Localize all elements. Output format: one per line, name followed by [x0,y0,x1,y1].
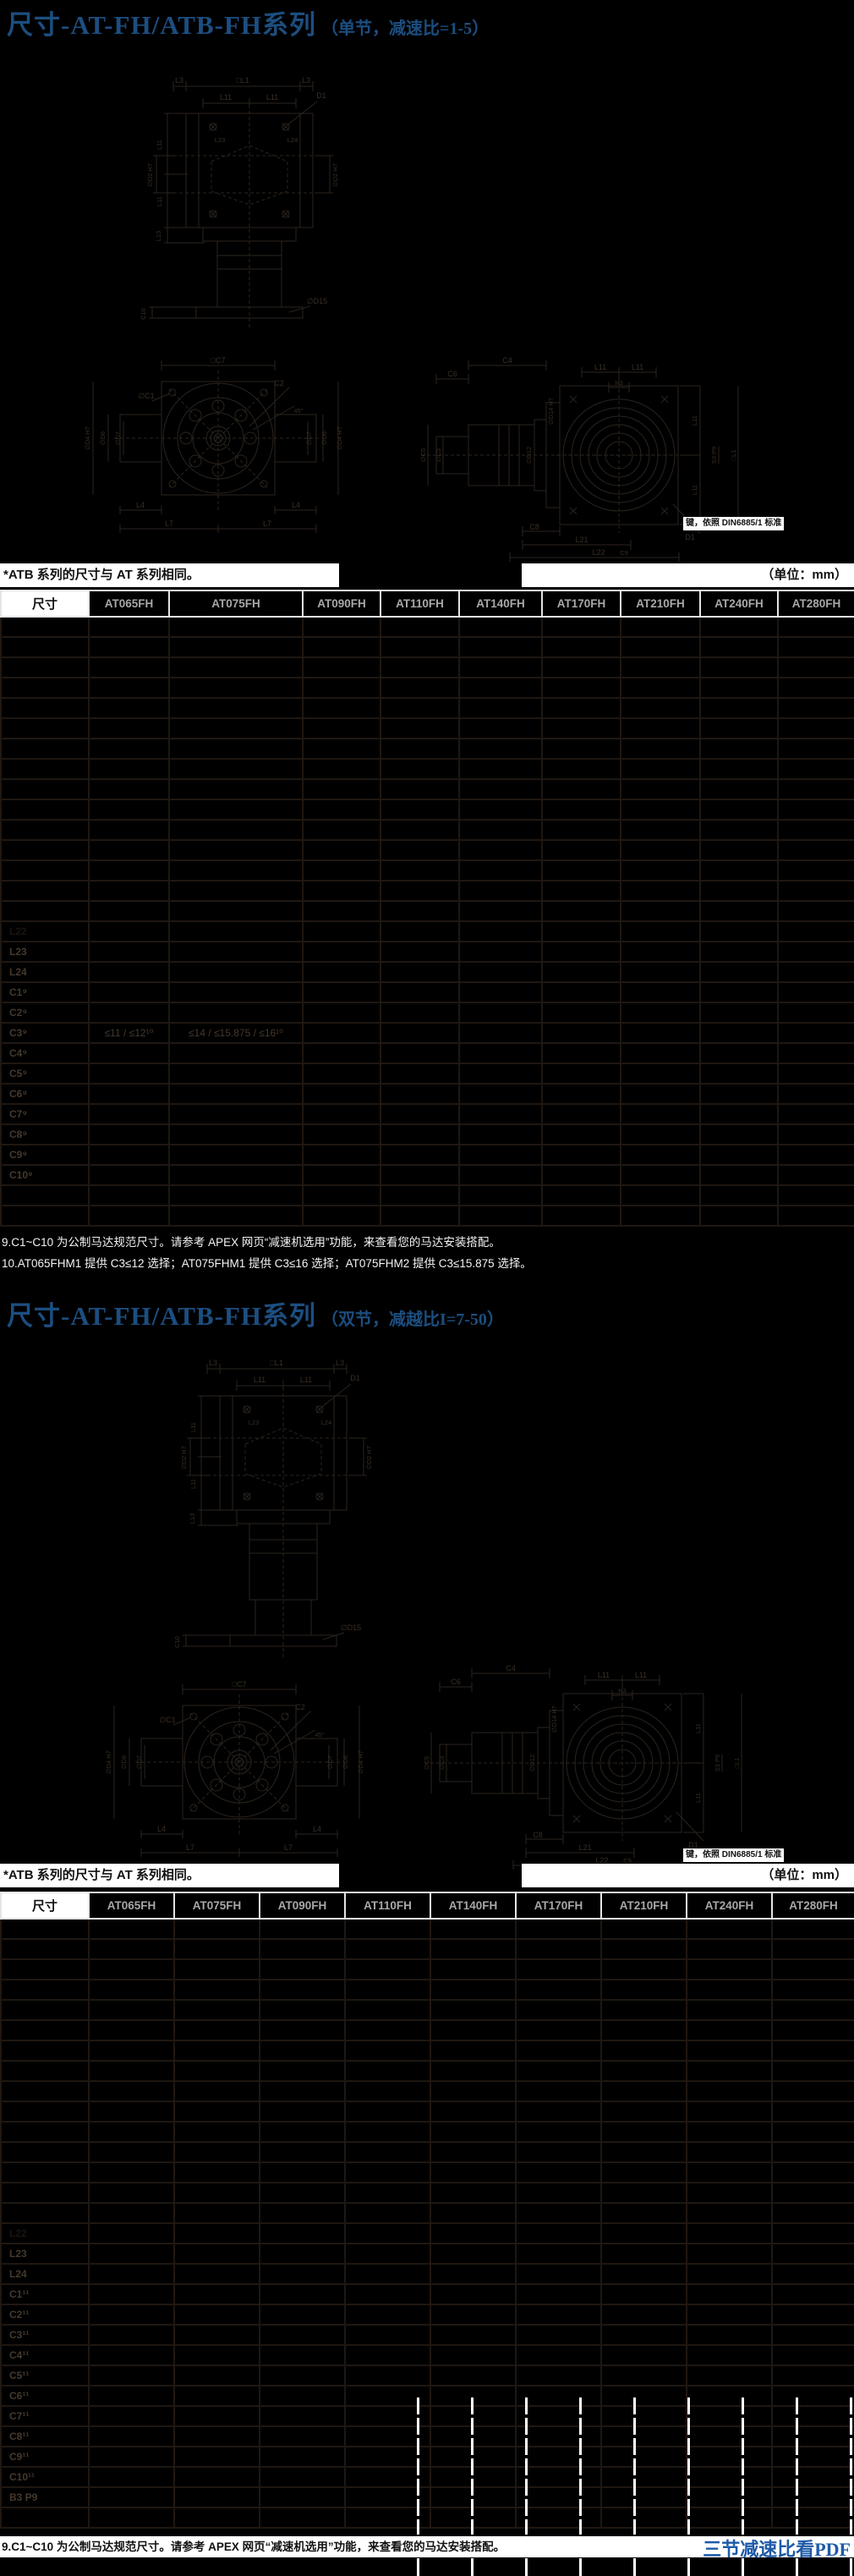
dimension-cell [89,1145,169,1165]
dimension-cell [778,779,854,799]
dimension-cell [621,820,700,840]
dimension-cell [542,637,621,657]
dimension-cell [459,1185,542,1206]
dimension-cell [778,1023,854,1043]
dimension-cell [542,1104,621,1124]
top-view-drawing-1: L3 □L1 L3 L11 L11 D1 L23 L24 ∅D2 H7 ∅D2 … [76,64,355,333]
row-label [1,2000,89,2020]
dimension-cell [687,2507,772,2528]
dimension-cell [687,2061,772,2081]
row-label [1,2040,89,2061]
row-label: C10¹¹ [1,2467,89,2487]
table-header-row: 尺寸 AT065FH AT075FH AT090FH AT110FH AT140… [1,1892,854,1919]
dimension-cell [169,657,303,678]
dim-label: C10 [140,308,147,320]
table-row: C9¹¹ [1,2447,854,2467]
dimension-cell [303,1023,380,1043]
dimension-cell [601,2386,687,2406]
dimension-cell [700,962,778,982]
dimension-cell [260,2507,345,2528]
dimension-cell [542,901,621,921]
dimension-cell [430,2284,516,2304]
dimension-cell [430,2020,516,2040]
dimension-cell [380,1145,459,1165]
dimension-cell [380,1206,459,1226]
dimension-cell [459,1043,542,1063]
dimension-cell [169,1104,303,1124]
dimension-cell [89,840,169,860]
dimension-cell [621,1043,700,1063]
dimension-cell: ≤14 / ≤15.875 / ≤16¹⁰ [169,1023,303,1043]
dimension-cell [174,2365,260,2386]
table-row [1,2203,854,2223]
dimension-cell [772,2507,854,2528]
dimension-cell [778,739,854,759]
table-row [1,2020,854,2040]
dimension-cell [380,921,459,942]
table-row [1,739,854,759]
dimension-cell [516,2040,601,2061]
dimension-cell [700,1002,778,1023]
dimension-cell [174,2345,260,2365]
dimension-cell [542,779,621,799]
dimension-cell [516,2345,601,2365]
dimension-cell [621,1104,700,1124]
dimension-cell [345,2183,430,2203]
table-row [1,1980,854,2000]
dimension-cell [687,2426,772,2447]
dimension-table-double-stage: 尺寸 AT065FH AT075FH AT090FH AT110FH AT140… [0,1892,854,2529]
dim-label: L24 [321,1419,332,1426]
dimension-cell [687,2304,772,2325]
dimension-cell [516,2426,601,2447]
row-label: B3 P9 [1,2487,89,2507]
dimension-cell [542,678,621,698]
dimension-cell [89,2122,174,2142]
dim-label: L4 [292,501,300,509]
dim-label: L11 [691,415,698,426]
dimension-cell [380,698,459,718]
column-header: AT170FH [516,1892,601,1919]
dimension-cell [89,1104,169,1124]
row-label [1,779,89,799]
dimension-cell [174,2507,260,2528]
dimension-cell [700,739,778,759]
table-row [1,698,854,718]
dimension-cell [89,2040,174,2061]
dim-label: L11 [156,196,163,206]
dim-label: L3 [209,1359,217,1367]
dimension-cell [542,840,621,860]
dimension-cell [542,1002,621,1023]
dimension-cell [260,2162,345,2183]
dimension-cell [303,1206,380,1226]
dimension-cell [601,2162,687,2183]
dimension-cell [380,1185,459,1206]
dimension-cell [772,1959,854,1980]
dimension-cell [459,942,542,962]
dim-label: L11 [189,1422,197,1432]
column-header: AT065FH [89,590,169,617]
dimension-cell [303,698,380,718]
dimension-cell [778,942,854,962]
dimension-cell [542,942,621,962]
dimension-cell [459,901,542,921]
dimension-cell [772,2426,854,2447]
dimension-cell [89,637,169,657]
column-header: AT090FH [303,590,380,617]
dimension-cell [542,860,621,881]
dimension-cell [621,759,700,779]
dimension-cell [260,2081,345,2101]
dimension-cell [380,1124,459,1145]
dimension-cell [601,1919,687,1939]
dimension-cell [459,1002,542,1023]
dimension-cell [260,2122,345,2142]
dimension-cell [772,2101,854,2122]
dimension-cell [260,1939,345,1959]
dim-label: ∅D14 H7 [547,398,555,425]
dimension-cell [89,2447,174,2467]
dimension-cell [89,2000,174,2020]
unit-note-bar-1: （单位：mm） [522,563,854,587]
dimension-cell [345,2365,430,2386]
dimension-cell [772,2345,854,2365]
table-row [1,2000,854,2020]
dimension-cell [89,1185,169,1206]
row-label [1,1980,89,2000]
dim-label: H3 [618,1687,627,1694]
column-header: AT110FH [380,590,459,617]
dimension-cell [516,2081,601,2101]
dimension-cell [687,2345,772,2365]
dimension-cell [430,2000,516,2020]
dimension-cell [169,921,303,942]
table-row: C8⁹ [1,1124,854,1145]
dimension-cell [174,1919,260,1939]
dimension-cell [687,2122,772,2142]
dimension-cell [345,2325,430,2345]
artifact-line [687,2558,690,2576]
dimension-cell [621,982,700,1002]
artifact-line [633,2397,636,2535]
dimension-cell [430,2040,516,2061]
dimension-cell [601,2467,687,2487]
dimension-cell [174,2061,260,2081]
dimension-cell [687,2264,772,2284]
dimension-cell [380,759,459,779]
dimension-cell [169,1002,303,1023]
dimension-cell [89,2426,174,2447]
dimension-cell [260,1959,345,1980]
dimension-cell [687,2142,772,2162]
dim-label: C2 [274,379,284,387]
table-row [1,1919,854,1939]
dimension-cell [772,2406,854,2426]
dimension-cell [89,2386,174,2406]
dim-label: L4 [157,1825,166,1833]
dimension-cell [174,1939,260,1959]
dimension-cell [516,1980,601,2000]
dimension-cell [430,1939,516,1959]
dimension-cell [260,2223,345,2244]
dimension-cell [459,739,542,759]
dimension-cell [700,840,778,860]
dimension-cell [778,820,854,840]
table-row [1,1959,854,1980]
dimension-cell [778,881,854,901]
dimension-cell [700,779,778,799]
section2-title: 尺寸-AT-FH/ATB-FH系列（双节，减越比I=7-50） [7,1294,504,1332]
dimension-cell [380,678,459,698]
dimension-table-single-stage: 尺寸 AT065FH AT075FH AT090FH AT110FH AT140… [0,590,854,1227]
dimension-cell [459,678,542,698]
dimension-cell [260,2447,345,2467]
dimension-cell [89,2183,174,2203]
dimension-cell [303,1185,380,1206]
dimension-cell [260,2183,345,2203]
row-label: C8¹¹ [1,2426,89,2447]
dimension-cell [700,718,778,739]
dimension-cell [89,1063,169,1084]
dimension-cell [778,1206,854,1226]
dimension-cell [516,2020,601,2040]
dimension-cell [169,881,303,901]
dim-label: ∅D7 [326,1755,334,1769]
dimension-cell [459,921,542,942]
footnotes-1: 9.C1~C10 为公制马达规范尺寸。请参考 APEX 网页“减速机选用”功能，… [2,1232,532,1274]
dimension-cell [621,1165,700,1185]
dimension-cell [778,1084,854,1104]
dim-label: □L1 [236,76,249,85]
dimension-cell [772,1919,854,1939]
dimension-cell [772,2122,854,2142]
dim-label: ∅D2 H7 [331,163,339,187]
dimension-cell [700,698,778,718]
dimension-cell [260,2365,345,2386]
dimension-cell [700,1124,778,1145]
dimension-cell [89,962,169,982]
dimension-cell [380,637,459,657]
catalog-page: 尺寸-AT-FH/ATB-FH系列（单节，减速比=1-5） [0,0,854,2576]
dim-label: L23 [215,136,226,144]
row-label: L24 [1,962,89,982]
dimension-cell [621,1145,700,1165]
dimension-cell [89,2406,174,2426]
dim-label: L3 [302,76,310,85]
dimension-cell [303,1124,380,1145]
dimension-cell [621,678,700,698]
dimension-cell [260,2284,345,2304]
dimension-cell [778,901,854,921]
dimension-cell [169,637,303,657]
dimension-cell [260,2203,345,2223]
dimension-cell [687,2325,772,2345]
dim-label: L7 [186,1843,194,1852]
dim-label: ∅D7 [114,431,122,445]
dimension-cell [169,1124,303,1145]
dimension-cell [260,2264,345,2284]
table-row [1,1185,854,1206]
row-label [1,860,89,881]
dimension-cell [430,2345,516,2365]
dimension-cell [700,1104,778,1124]
dimension-cell [89,2020,174,2040]
dimension-cell [345,2020,430,2040]
dimension-cell [380,799,459,820]
dimension-cell [174,2406,260,2426]
dimension-cell [772,2203,854,2223]
table-row: C4⁹ [1,1043,854,1063]
dimension-cell [380,779,459,799]
dimension-cell [621,1206,700,1226]
dim-label: D1 [685,533,695,541]
row-label [1,2162,89,2183]
dim-label: ∅D6 [120,1755,128,1769]
dimension-cell [778,657,854,678]
table-row [1,901,854,921]
table-row [1,617,854,637]
dimension-cell [169,1185,303,1206]
dim-label: □C7 [211,356,226,365]
dimension-cell [169,942,303,962]
table-row: C2⁹ [1,1002,854,1023]
dimension-cell [516,2284,601,2304]
dimension-cell [778,1165,854,1185]
dim-label: C6 [451,1678,461,1686]
dim-label: ∅D6 [342,1755,349,1769]
table-row [1,2081,854,2101]
table-row: C8¹¹ [1,2426,854,2447]
column-header: AT075FH [169,590,303,617]
row-label: C9⁹ [1,1145,89,1165]
dimension-cell [772,1939,854,1959]
dimension-cell [687,2081,772,2101]
dim-label: ∅C1 [138,392,154,400]
row-label [1,739,89,759]
dimension-cell [778,921,854,942]
dimension-cell [89,678,169,698]
dimension-cell [778,860,854,881]
dimension-cell [621,1023,700,1043]
table-row [1,657,854,678]
dimension-cell [89,2162,174,2183]
dimension-cell [516,2406,601,2426]
dimension-cell [345,2264,430,2284]
dimension-cell [687,1980,772,2000]
column-header: AT210FH [601,1892,687,1919]
dimension-cell [687,2365,772,2386]
dimension-cell [89,2467,174,2487]
table-row: C6¹¹ [1,2386,854,2406]
dimension-cell [89,860,169,881]
dimension-cell [89,2142,174,2162]
table-row [1,860,854,881]
dim-label: L11 [598,1671,610,1679]
table-row: C5¹¹ [1,2365,854,2386]
dim-label: ∅D2 H7 [146,163,154,187]
dimension-cell [303,1104,380,1124]
atb-note-bar-1: *ATB 系列的尺寸与 AT 系列相同。 [0,563,339,587]
three-stage-pdf-link[interactable]: 三节减速比看PDF [703,2535,851,2562]
dimension-cell [430,1919,516,1939]
table-row: L24 [1,962,854,982]
dimension-cell [772,2081,854,2101]
dimension-cell [601,2487,687,2507]
dimension-cell [778,1063,854,1084]
table-row: L22 [1,921,854,942]
dimension-cell [89,2203,174,2223]
dimension-cell [542,617,621,637]
dimension-cell [345,1939,430,1959]
dim-label: L11 [694,1723,702,1733]
dimension-cell [89,2101,174,2122]
dimension-cell [516,2122,601,2142]
dimension-cell [516,1939,601,1959]
dimension-cell [169,1165,303,1185]
din-standard-note-2: 键，依照 DIN6885/1 标准 [683,1848,784,1862]
dimension-cell [89,2365,174,2386]
dimension-cell [601,1939,687,1959]
dimension-cell [772,2244,854,2264]
dim-label: L11 [220,93,232,102]
table-row [1,881,854,901]
dimension-cell [516,2061,601,2081]
dimension-cell [687,2244,772,2264]
dimension-cell [516,2162,601,2183]
dimension-cell [260,2142,345,2162]
row-label [1,698,89,718]
row-label [1,2142,89,2162]
dimension-cell [621,779,700,799]
row-label [1,617,89,637]
table-row: L22 [1,2223,854,2244]
dimension-cell [345,2223,430,2244]
dimension-cell [89,739,169,759]
dimension-cell [772,2284,854,2304]
dimension-cell [89,2304,174,2325]
row-label: C1⁹ [1,982,89,1002]
table-row: L24 [1,2264,854,2284]
dimension-cell [169,799,303,820]
dimension-cell [542,982,621,1002]
dimension-cell [89,942,169,962]
dimension-cell [169,962,303,982]
dim-label: ∅D4 H7 [336,426,343,450]
dimension-cell [380,942,459,962]
dimension-cell [169,1206,303,1226]
dimension-cell [345,1919,430,1939]
dimension-cell [89,820,169,840]
dim-label: □C7 [233,1680,247,1689]
dimension-cell [260,2325,345,2345]
dimension-cell [260,2061,345,2081]
dimension-cell [430,2081,516,2101]
dimension-cell [260,2487,345,2507]
dimension-cell [459,840,542,860]
dim-label: ∅D2 H7 [365,1446,373,1469]
dimension-cell [778,840,854,860]
dimension-cell [303,921,380,942]
dimension-cell [700,799,778,820]
dim-label: L13 [189,1513,196,1524]
dim-label: L21 [575,536,588,544]
dimension-cell [89,779,169,799]
dimension-cell [687,2020,772,2040]
dimension-cell [303,718,380,739]
dimension-cell [542,698,621,718]
column-header: AT210FH [621,590,700,617]
